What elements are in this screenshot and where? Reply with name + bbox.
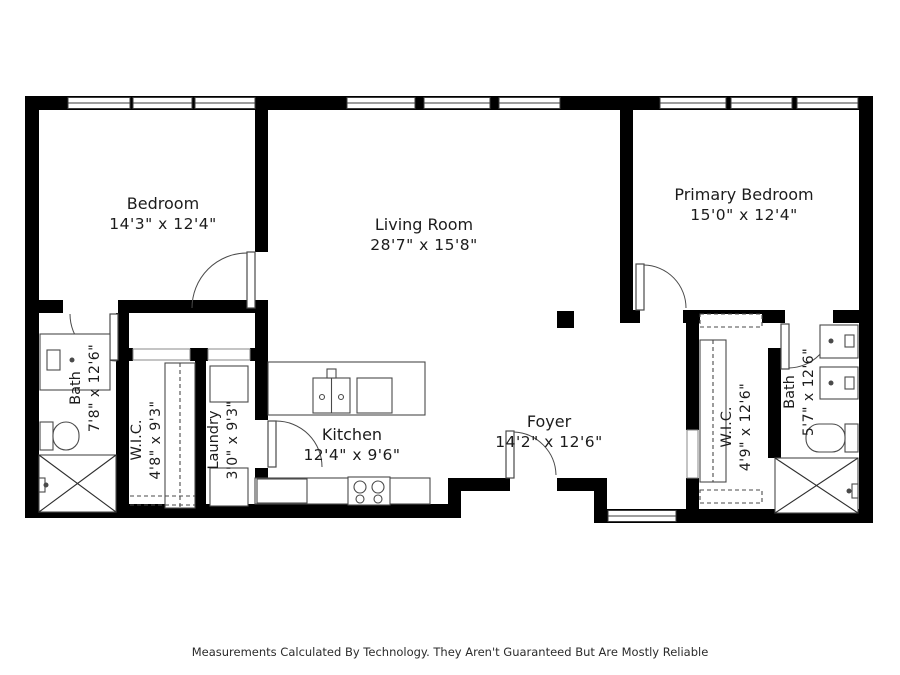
- kitchen-stove: [348, 477, 390, 505]
- living-room-windows: [347, 98, 560, 109]
- kitchen-counter: [255, 477, 430, 505]
- wic-left-opening: [133, 349, 190, 360]
- wall-foyer-step-left: [448, 478, 461, 518]
- kitchen-island: [268, 362, 425, 415]
- wall-bedroom-living-top: [255, 110, 268, 252]
- wic-left-closet: [130, 363, 195, 508]
- wall-living-primary: [620, 110, 633, 323]
- column: [557, 311, 574, 328]
- wall-wic-laundry: [195, 348, 206, 518]
- laundry-washer: [210, 366, 248, 402]
- wall-foyer-wic-b: [686, 478, 699, 518]
- floorplan-canvas: Bedroom 14'3" x 12'4" Living Room 28'7" …: [0, 0, 900, 675]
- bath-right-vanity-1: [820, 325, 858, 358]
- wall-wic-bath-right: [768, 348, 781, 458]
- wall-laundry-north: [250, 348, 268, 361]
- primary-bedroom-door: [636, 264, 686, 310]
- entry-door: [506, 431, 556, 478]
- wic-right-closet: [700, 314, 762, 503]
- kitchen-fridge: [257, 479, 307, 503]
- wall-foyer-wic-a: [686, 323, 699, 430]
- kitchen-dishwasher: [357, 378, 392, 413]
- wall-right: [859, 96, 873, 523]
- wall-foyer-step-right: [594, 478, 607, 523]
- wall-bedroom-living-mid: [255, 308, 268, 420]
- wic-right-opening: [687, 430, 698, 478]
- bath-right-vanity-2: [820, 367, 858, 399]
- bedroom-door: [192, 252, 255, 308]
- wall-bedroom-south-b: [118, 300, 268, 313]
- bath-left-toilet: [40, 422, 79, 450]
- wall-primary-south-a: [620, 310, 640, 323]
- wall-bedroom-south-a: [39, 300, 63, 313]
- primary-bedroom-windows: [660, 98, 858, 109]
- bath-right-shower: [775, 458, 858, 513]
- wall-primary-south-c: [833, 310, 873, 323]
- laundry-dryer: [210, 468, 248, 506]
- laundry-opening: [208, 349, 250, 360]
- floorplan-drawing: [0, 0, 900, 675]
- bath-left-vanity: [40, 334, 110, 390]
- kitchen-door: [268, 421, 322, 467]
- bath-right-toilet: [806, 424, 858, 452]
- bath-left-shower: [39, 455, 116, 512]
- wall-left: [25, 96, 39, 518]
- measurement-disclaimer: Measurements Calculated By Technology. T…: [192, 645, 709, 659]
- bedroom-windows: [68, 98, 255, 109]
